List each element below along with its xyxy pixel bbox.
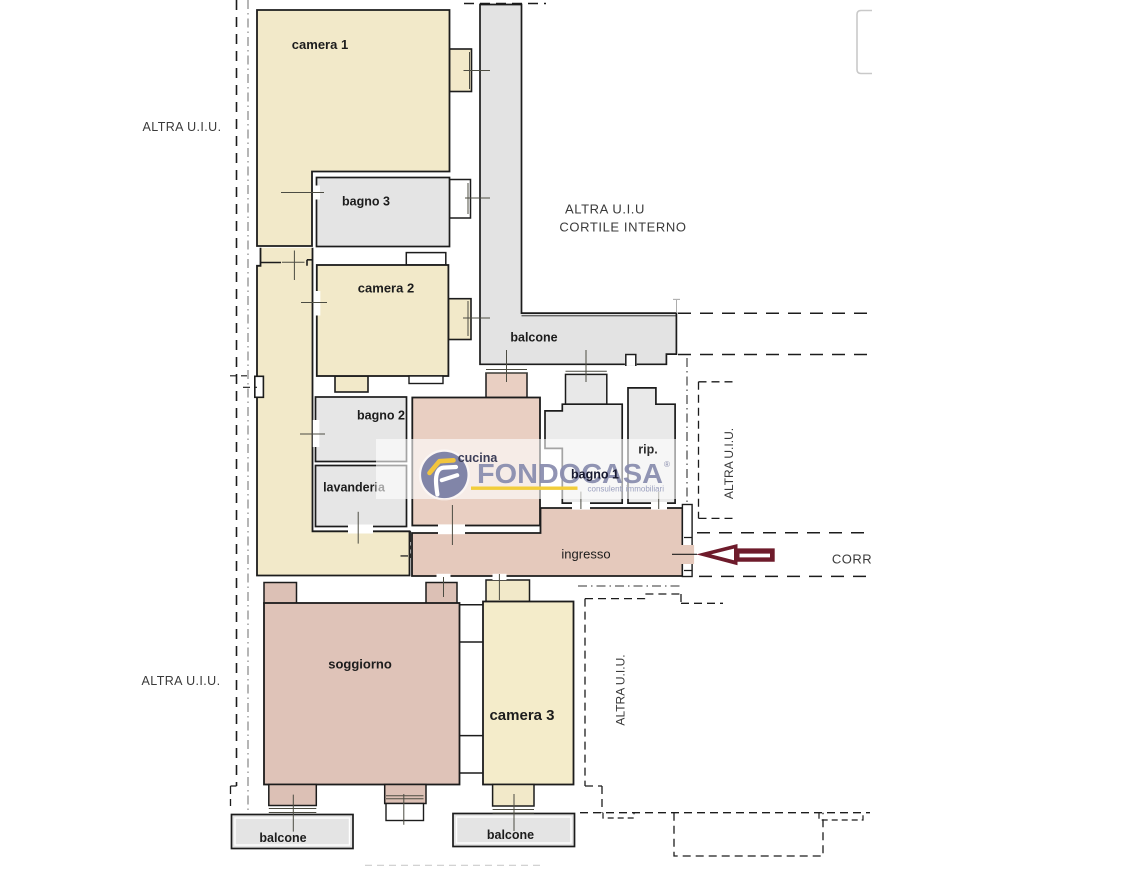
svg-text:ALTRA U.I.U.: ALTRA U.I.U.	[142, 674, 221, 688]
svg-text:ALTRA U.I.U.: ALTRA U.I.U.	[722, 428, 736, 499]
svg-text:bagno 3: bagno 3	[342, 195, 390, 209]
svg-text:ingresso: ingresso	[561, 547, 610, 562]
svg-text:CORTILE INTERNO: CORTILE INTERNO	[559, 220, 686, 235]
svg-text:®: ®	[664, 460, 670, 469]
svg-text:soggiorno: soggiorno	[328, 657, 392, 672]
svg-text:ALTRA U.I.U.: ALTRA U.I.U.	[143, 120, 222, 134]
svg-text:camera 2: camera 2	[358, 281, 414, 296]
svg-text:balcone: balcone	[259, 831, 306, 845]
svg-text:bagno 1: bagno 1	[571, 468, 619, 482]
svg-text:CORR: CORR	[832, 552, 872, 567]
svg-text:camera 1: camera 1	[292, 37, 348, 52]
svg-text:balcone: balcone	[510, 331, 557, 345]
svg-text:balcone: balcone	[487, 828, 534, 842]
svg-text:rip.: rip.	[638, 443, 657, 457]
svg-text:bagno 2: bagno 2	[357, 409, 405, 423]
svg-text:camera 3: camera 3	[489, 707, 554, 724]
svg-text:cucina: cucina	[458, 451, 499, 465]
svg-text:ALTRA U.I.U.: ALTRA U.I.U.	[614, 654, 628, 725]
svg-text:ALTRA U.I.U: ALTRA U.I.U	[565, 202, 645, 217]
svg-text:consulenti immobiliari: consulenti immobiliari	[588, 485, 665, 494]
